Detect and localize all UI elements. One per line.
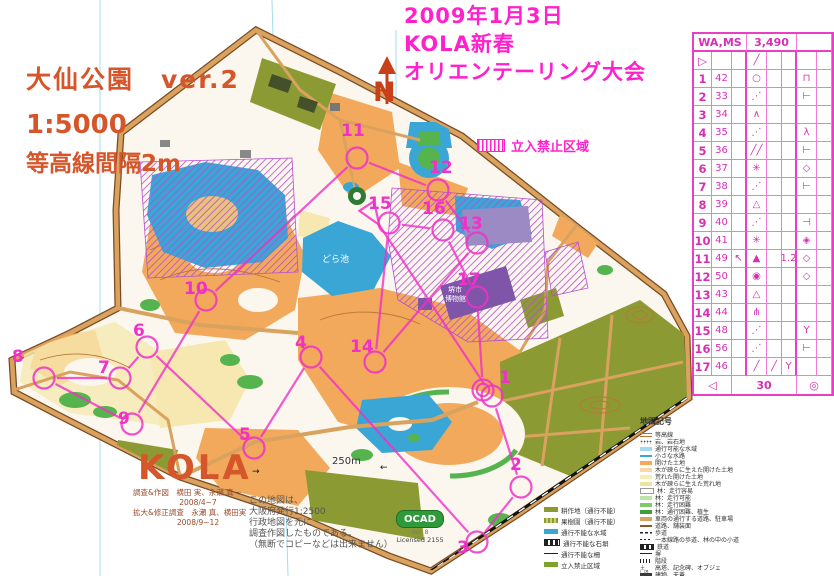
control-cell (732, 178, 747, 196)
control-cell (782, 142, 797, 160)
legend-swatch-icon (640, 461, 652, 465)
control-cell: WA,MS (694, 34, 747, 52)
event-title: 2009年1月3日 KOLA新春 オリエンテーリング大会 (404, 2, 646, 86)
legend-swatch-icon (640, 538, 652, 542)
legend-swatch-icon (544, 507, 558, 512)
control-cell (732, 304, 747, 322)
control-cell: ⊢ (797, 88, 817, 106)
control-cell: ◉ (747, 268, 767, 286)
control-cell: ▲ (747, 250, 767, 268)
ocad-version: Ver. 8 (396, 529, 444, 536)
control-cell (767, 124, 782, 142)
legend-swatch-icon: ＋□× (640, 566, 652, 570)
control-cell: 8 (694, 196, 712, 214)
control-cell: 3,490 (747, 34, 797, 52)
legend-label: 果樹園（通行不能） (561, 516, 620, 526)
control-cell: ✳ (747, 232, 767, 250)
svg-text:11: 11 (341, 121, 365, 141)
map-note: この地図は、 大阪府発行1:2500 行政地図を元に 調査作図したものである。 … (249, 496, 393, 551)
control-cell (767, 268, 782, 286)
pond-label: どら池 (322, 253, 349, 265)
control-cell: Y (782, 358, 797, 376)
control-cell: 1 (694, 70, 712, 88)
svg-text:N: N (373, 77, 396, 108)
control-cell: 11 (694, 250, 712, 268)
control-cell (797, 52, 817, 70)
control-cell: ◇ (797, 268, 817, 286)
museum-label-2: 博物館 (445, 294, 466, 303)
control-cell: 13 (694, 286, 712, 304)
legend-swatch-icon (640, 552, 652, 556)
control-cell: 46 (712, 358, 732, 376)
control-cell: ○ (747, 70, 767, 88)
control-cell: 44 (712, 304, 732, 322)
legend-swatch-icon (640, 440, 652, 444)
control-cell: 43 (712, 286, 732, 304)
legend-swatch-icon (544, 518, 558, 523)
credits: 調査&作図 横田 実、永瀬 真一 2008/4~7 拡大&修正調査 永瀬 真、横… (133, 488, 263, 528)
control-cell (817, 160, 832, 178)
control-cell: λ (797, 124, 817, 142)
map-name: 大仙公園 ver.2 (26, 60, 240, 96)
ocad-license: Licensed 2155 (396, 536, 444, 544)
control-cell: ▷ (694, 52, 712, 70)
control-cell (797, 358, 817, 376)
control-cell (817, 178, 832, 196)
control-cell: 49 (712, 250, 732, 268)
svg-text:10: 10 (184, 279, 208, 299)
note-line: （無断でコピーなどは出来ません） (249, 540, 393, 551)
control-cell: ⋰ (747, 178, 767, 196)
legend-swatch-icon (640, 531, 652, 535)
control-cell (732, 214, 747, 232)
control-cell (817, 106, 832, 124)
svg-text:7: 7 (98, 358, 110, 378)
control-cell (767, 196, 782, 214)
control-cell (782, 70, 797, 88)
control-cell: 39 (712, 196, 732, 214)
control-cell (782, 196, 797, 214)
legend-label: 通行不能な水域 (561, 527, 607, 537)
control-cell: 10 (694, 232, 712, 250)
control-cell: Y (797, 322, 817, 340)
control-cell (732, 52, 747, 70)
control-cell (817, 268, 832, 286)
control-cell (732, 106, 747, 124)
control-cell: 9 (694, 214, 712, 232)
control-cell: ∧ (747, 106, 767, 124)
control-cell (732, 142, 747, 160)
svg-text:17: 17 (457, 270, 481, 290)
legend-swatch-icon (544, 562, 558, 567)
control-cell (797, 196, 817, 214)
legend-label: 立入禁止区域 (561, 560, 600, 570)
control-cell: 33 (712, 88, 732, 106)
svg-text:2: 2 (510, 455, 522, 475)
note-line: 調査作図したものである。 (249, 529, 393, 540)
control-cell (797, 34, 832, 52)
ocad-badge: OCAD Ver. 8 Licensed 2155 (396, 510, 444, 544)
control-cell: ◇ (797, 160, 817, 178)
control-cell (767, 88, 782, 106)
scale-arrow-icon: ← (380, 463, 388, 473)
legend-item: 道路、舗装面 (640, 522, 834, 529)
control-cell (767, 250, 782, 268)
legend-swatch-icon (640, 517, 652, 521)
control-cell (782, 214, 797, 232)
control-cell (732, 286, 747, 304)
control-cell: 41 (712, 232, 732, 250)
control-cell (797, 106, 817, 124)
control-cell (817, 52, 832, 70)
control-cell: ↖ (732, 250, 747, 268)
control-cell (732, 268, 747, 286)
control-cell: ⊢ (797, 178, 817, 196)
note-line: この地図は、 (249, 496, 393, 507)
legend-item: 建物、天蓋 (640, 571, 834, 576)
control-cell: 35 (712, 124, 732, 142)
control-cell: ⋰ (747, 88, 767, 106)
legend-item: 通行不能な石塀 (544, 537, 644, 548)
control-cell: 34 (712, 106, 732, 124)
control-cell (767, 304, 782, 322)
credit-line: 2008/4~7 (133, 498, 263, 508)
legend-swatch-icon (640, 503, 652, 507)
control-cell (767, 70, 782, 88)
event-name: オリエンテーリング大会 (404, 58, 646, 86)
svg-text:15: 15 (368, 194, 392, 214)
control-description-card: WA,MS3,490▷╱142○⊓233⋰⊢334∧435⋰λ536╱╱⊢637… (692, 32, 834, 396)
legend-item: 鉄道 (640, 543, 834, 550)
control-cell: 16 (694, 340, 712, 358)
control-cell (712, 52, 732, 70)
control-cell: 38 (712, 178, 732, 196)
control-cell (782, 178, 797, 196)
control-cell: 42 (712, 70, 732, 88)
control-cell: ╱ (747, 358, 767, 376)
control-cell: ⊓ (797, 70, 817, 88)
control-cell (817, 196, 832, 214)
control-cell: ◁ (694, 376, 732, 394)
orienteering-map-page: どら池 堺市 博物館 → ← N 12345678910111213141516… (0, 0, 834, 576)
control-cell (767, 340, 782, 358)
svg-text:4: 4 (295, 333, 307, 353)
control-cell (782, 232, 797, 250)
control-cell: 5 (694, 142, 712, 160)
control-cell: ⊣ (797, 214, 817, 232)
control-cell: ◎ (797, 376, 832, 394)
credit-line: 調査&作図 横田 実、永瀬 真一 (133, 488, 263, 498)
control-cell: 15 (694, 322, 712, 340)
legend-item: 立入禁止区域 (544, 559, 644, 570)
control-cell (767, 160, 782, 178)
svg-text:6: 6 (133, 321, 145, 341)
control-cell: 37 (712, 160, 732, 178)
control-cell: △ (747, 286, 767, 304)
control-cell: 36 (712, 142, 732, 160)
legend-item: 通行不能な水域 (544, 526, 644, 537)
control-cell: ✳ (747, 160, 767, 178)
control-cell: 40 (712, 214, 732, 232)
legend-swatch-icon (640, 524, 652, 528)
svg-text:5: 5 (239, 425, 251, 445)
control-cell (782, 124, 797, 142)
control-cell (732, 196, 747, 214)
control-cell: ⋔ (747, 304, 767, 322)
control-cell (767, 106, 782, 124)
svg-text:3: 3 (457, 538, 469, 558)
legend-label: 通行不能な石塀 (563, 538, 609, 548)
control-cell: 1.2 (782, 250, 797, 268)
control-cell (817, 286, 832, 304)
control-cell: 12 (694, 268, 712, 286)
control-cell (817, 124, 832, 142)
control-cell (767, 52, 782, 70)
credit-line: 2008/9~12 (133, 518, 263, 528)
note-arrow-icon: → (252, 467, 260, 477)
legend-item: 塀 (640, 550, 834, 557)
credit-line: 拡大&修正調査 永瀬 真、横田実 (133, 508, 263, 518)
map-contour-interval: 等高線間隔2m (26, 144, 240, 178)
svg-text:16: 16 (422, 199, 446, 219)
control-cell: ⋰ (747, 322, 767, 340)
control-cell (767, 232, 782, 250)
control-cell (732, 124, 747, 142)
control-cell (782, 106, 797, 124)
control-cell (767, 178, 782, 196)
north-arrow-icon: N (373, 56, 396, 108)
control-cell (767, 286, 782, 304)
control-cell (782, 160, 797, 178)
map-scale: 1:5000 (26, 110, 240, 140)
control-cell (732, 70, 747, 88)
control-cell: 17 (694, 358, 712, 376)
control-cell: ⋰ (747, 340, 767, 358)
legend-swatch-icon (640, 475, 652, 479)
control-cell (732, 232, 747, 250)
control-cell (732, 160, 747, 178)
control-cell (782, 322, 797, 340)
control-cell (767, 214, 782, 232)
control-cell: 48 (712, 322, 732, 340)
control-cell (782, 88, 797, 106)
no-entry-label: 立入禁止区域 (511, 136, 589, 155)
note-line: 大阪府発行1:2500 (249, 507, 393, 518)
legend-swatch-icon (544, 529, 558, 534)
control-cell: 7 (694, 178, 712, 196)
control-cell: ╱╱ (747, 142, 767, 160)
control-cell (817, 358, 832, 376)
control-cell (817, 322, 832, 340)
legend-swatch-icon (640, 468, 652, 472)
control-cell: ╱ (747, 52, 767, 70)
legend-swatch-icon (640, 488, 654, 494)
legend-swatch-icon (640, 496, 652, 500)
svg-text:14: 14 (350, 337, 374, 357)
legend-item: 一本線路の歩道、林の中の小道 (640, 536, 834, 543)
control-cell: ◈ (797, 232, 817, 250)
control-cell: 14 (694, 304, 712, 322)
control-cell: ⋰ (747, 214, 767, 232)
control-cell: 3 (694, 106, 712, 124)
legend-swatch-icon (640, 544, 654, 550)
legend-swatch-icon (640, 559, 652, 563)
control-cell: ⊢ (797, 142, 817, 160)
no-entry-swatch-icon (477, 139, 505, 152)
svg-text:13: 13 (459, 214, 483, 234)
control-cell (782, 268, 797, 286)
control-cell (817, 142, 832, 160)
control-cell (817, 250, 832, 268)
control-cell (797, 286, 817, 304)
control-cell: ◇ (797, 250, 817, 268)
control-cell (817, 214, 832, 232)
legend-right-column: 地図記号 等高線岩、岩石地通行可能な水域小さな水路開けた土地木が疎らに生えた開け… (640, 416, 834, 576)
svg-text:1: 1 (499, 368, 511, 388)
legend-left-column: 耕作地（通行不能）果樹園（通行不能）通行不能な水域通行不能な石塀通行不能な柵立入… (544, 504, 644, 570)
legend-swatch-icon (544, 539, 560, 546)
legend-swatch-icon (640, 510, 652, 514)
legend-swatch-icon (640, 573, 652, 576)
note-line: 行政地図を元に (249, 518, 393, 529)
kola-logo: KOLA (138, 448, 252, 488)
legend-swatch-icon (640, 433, 652, 437)
svg-text:12: 12 (429, 158, 453, 178)
legend-item: 耕作地（通行不能） (544, 504, 644, 515)
legend-label: 通行不能な柵 (561, 549, 600, 559)
control-cell: 2 (694, 88, 712, 106)
ocad-logo: OCAD (396, 510, 444, 528)
legend-label: 建物、天蓋 (655, 570, 685, 576)
control-cell (797, 304, 817, 322)
control-cell (732, 358, 747, 376)
svg-text:9: 9 (118, 409, 130, 429)
legend-title: 地図記号 (640, 416, 834, 427)
legend-swatch-icon (640, 447, 652, 451)
control-cell (817, 232, 832, 250)
control-cell: ⊢ (797, 340, 817, 358)
control-cell: ╱ (767, 358, 782, 376)
control-cell (782, 52, 797, 70)
control-cell (817, 340, 832, 358)
legend-label: 耕作地（通行不能） (561, 505, 620, 515)
control-cell (782, 286, 797, 304)
control-cell (782, 340, 797, 358)
control-cell: 6 (694, 160, 712, 178)
control-cell (732, 88, 747, 106)
control-cell (767, 322, 782, 340)
event-club: KOLA新春 (404, 30, 646, 58)
control-cell: ⋰ (747, 124, 767, 142)
event-date: 2009年1月3日 (404, 2, 646, 30)
control-cell (732, 340, 747, 358)
no-entry-legend: 立入禁止区域 (477, 136, 589, 155)
control-cell: △ (747, 196, 767, 214)
control-cell (767, 142, 782, 160)
map-title: 大仙公園 ver.2 1:5000 等高線間隔2m (26, 60, 240, 178)
control-cell: 4 (694, 124, 712, 142)
legend-item: 果樹園（通行不能） (544, 515, 644, 526)
legend-item: 通行不能な柵 (544, 548, 644, 559)
control-cell (817, 88, 832, 106)
control-cell (817, 70, 832, 88)
legend-swatch-icon (640, 482, 652, 486)
control-cell: 30 (732, 376, 797, 394)
legend-swatch-icon (544, 551, 558, 556)
control-cell: 56 (712, 340, 732, 358)
control-cell (732, 322, 747, 340)
control-cell (817, 304, 832, 322)
scale-bar: 250m (332, 456, 361, 467)
control-cell: 50 (712, 268, 732, 286)
legend-items: 等高線岩、岩石地通行可能な水域小さな水路開けた土地木が疎らに生えた開けた土地荒れ… (640, 431, 834, 576)
svg-text:8: 8 (12, 347, 24, 367)
control-cell (782, 304, 797, 322)
legend-swatch-icon (640, 454, 652, 458)
